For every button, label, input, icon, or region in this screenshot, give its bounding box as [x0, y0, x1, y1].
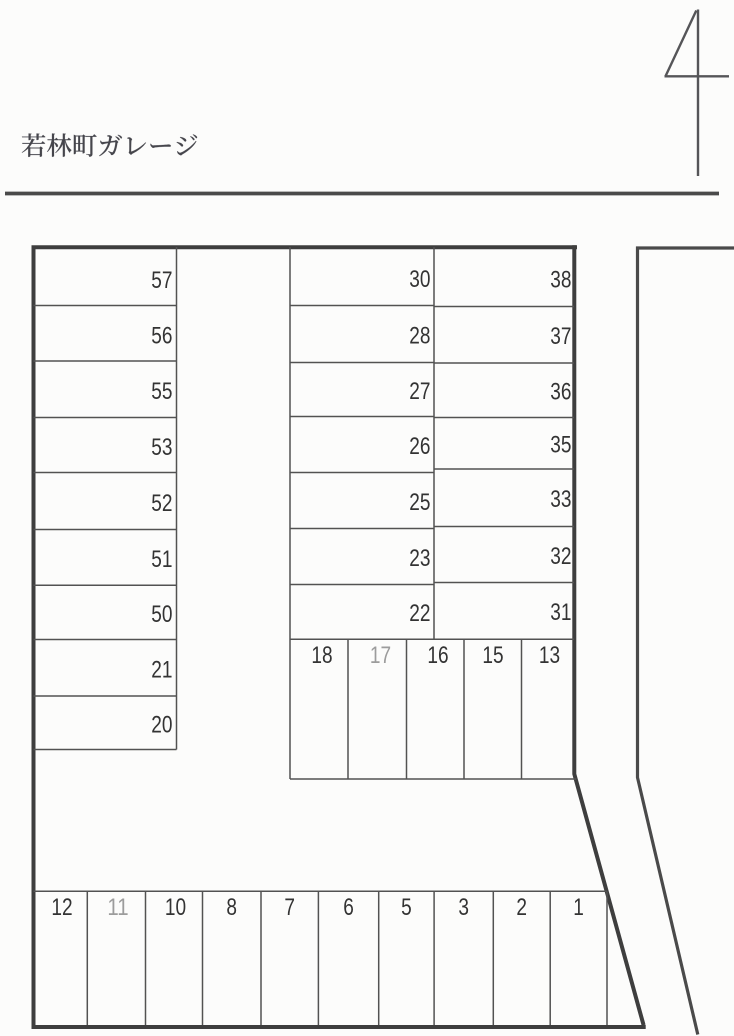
svg-text:15: 15 — [482, 642, 503, 669]
svg-text:2: 2 — [516, 894, 527, 921]
svg-text:12: 12 — [51, 894, 72, 921]
svg-text:20: 20 — [151, 712, 172, 739]
svg-text:37: 37 — [550, 323, 571, 350]
svg-text:35: 35 — [550, 432, 571, 459]
svg-text:50: 50 — [151, 601, 172, 628]
svg-text:1: 1 — [573, 894, 584, 921]
svg-text:52: 52 — [151, 490, 172, 517]
svg-text:33: 33 — [550, 486, 571, 513]
svg-text:53: 53 — [151, 434, 172, 461]
svg-text:38: 38 — [550, 267, 571, 294]
svg-text:26: 26 — [409, 433, 430, 460]
svg-text:3: 3 — [458, 894, 469, 921]
svg-text:17: 17 — [370, 642, 391, 669]
svg-text:32: 32 — [550, 543, 571, 570]
svg-text:8: 8 — [226, 894, 237, 921]
svg-text:18: 18 — [311, 642, 332, 669]
svg-text:57: 57 — [151, 267, 172, 294]
svg-text:11: 11 — [107, 894, 128, 921]
svg-text:30: 30 — [409, 266, 430, 293]
svg-text:13: 13 — [539, 642, 560, 669]
svg-text:22: 22 — [409, 600, 430, 627]
svg-text:21: 21 — [151, 657, 172, 684]
svg-text:51: 51 — [151, 546, 172, 573]
svg-text:16: 16 — [427, 642, 448, 669]
svg-text:55: 55 — [151, 378, 172, 405]
svg-text:36: 36 — [550, 379, 571, 406]
svg-text:7: 7 — [284, 894, 295, 921]
svg-text:5: 5 — [401, 894, 412, 921]
svg-text:10: 10 — [165, 894, 186, 921]
svg-text:25: 25 — [409, 489, 430, 516]
svg-text:56: 56 — [151, 323, 172, 350]
svg-text:31: 31 — [550, 599, 571, 626]
svg-text:6: 6 — [343, 894, 354, 921]
svg-text:23: 23 — [409, 545, 430, 572]
svg-text:28: 28 — [409, 323, 430, 350]
svg-text:27: 27 — [409, 378, 430, 405]
